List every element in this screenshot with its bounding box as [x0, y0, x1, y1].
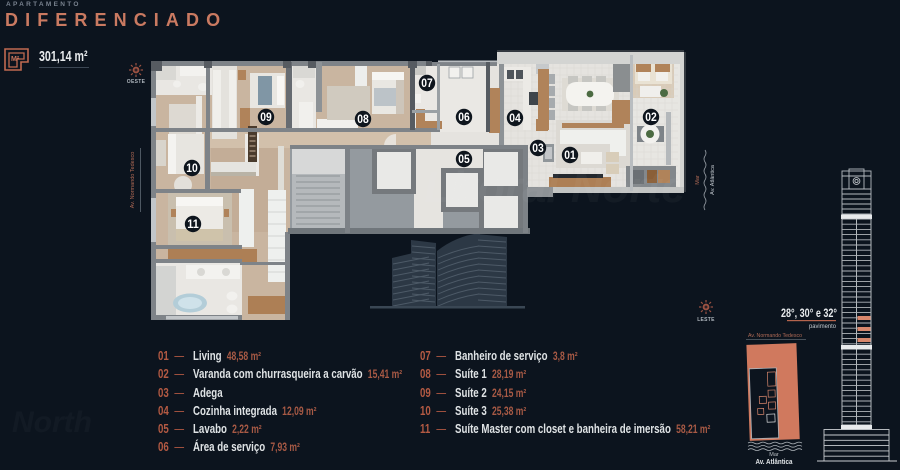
svg-text:M²: M² — [11, 56, 20, 63]
svg-text:Av. Normando Tedesco: Av. Normando Tedesco — [748, 333, 802, 339]
svg-text:Av. Atlântica: Av. Atlântica — [710, 164, 716, 195]
svg-text:pavimento: pavimento — [809, 323, 836, 330]
svg-text:LESTE: LESTE — [697, 317, 715, 323]
svg-text:02: 02 — [645, 110, 657, 124]
svg-text:10: 10 — [186, 161, 198, 175]
svg-text:08: 08 — [357, 112, 369, 126]
svg-text:28°, 30° e 32°: 28°, 30° e 32° — [781, 308, 837, 320]
svg-text:04: 04 — [509, 111, 521, 125]
svg-text:01: 01 — [564, 148, 576, 162]
svg-text:Mar: Mar — [769, 452, 779, 458]
svg-text:Av. Normando Tedesco: Av. Normando Tedesco — [130, 152, 136, 209]
svg-text:North: North — [12, 406, 92, 439]
svg-text:03: 03 — [532, 141, 544, 155]
svg-text:Litoral Norte: Litoral Norte — [424, 163, 686, 212]
svg-text:11: 11 — [187, 217, 199, 231]
svg-text:07: 07 — [421, 76, 433, 90]
svg-text:Mar: Mar — [695, 175, 701, 185]
svg-text:09: 09 — [260, 110, 272, 124]
svg-text:06: 06 — [458, 110, 470, 124]
svg-text:OESTE: OESTE — [127, 79, 146, 85]
svg-text:Av. Atlântica: Av. Atlântica — [756, 459, 793, 466]
